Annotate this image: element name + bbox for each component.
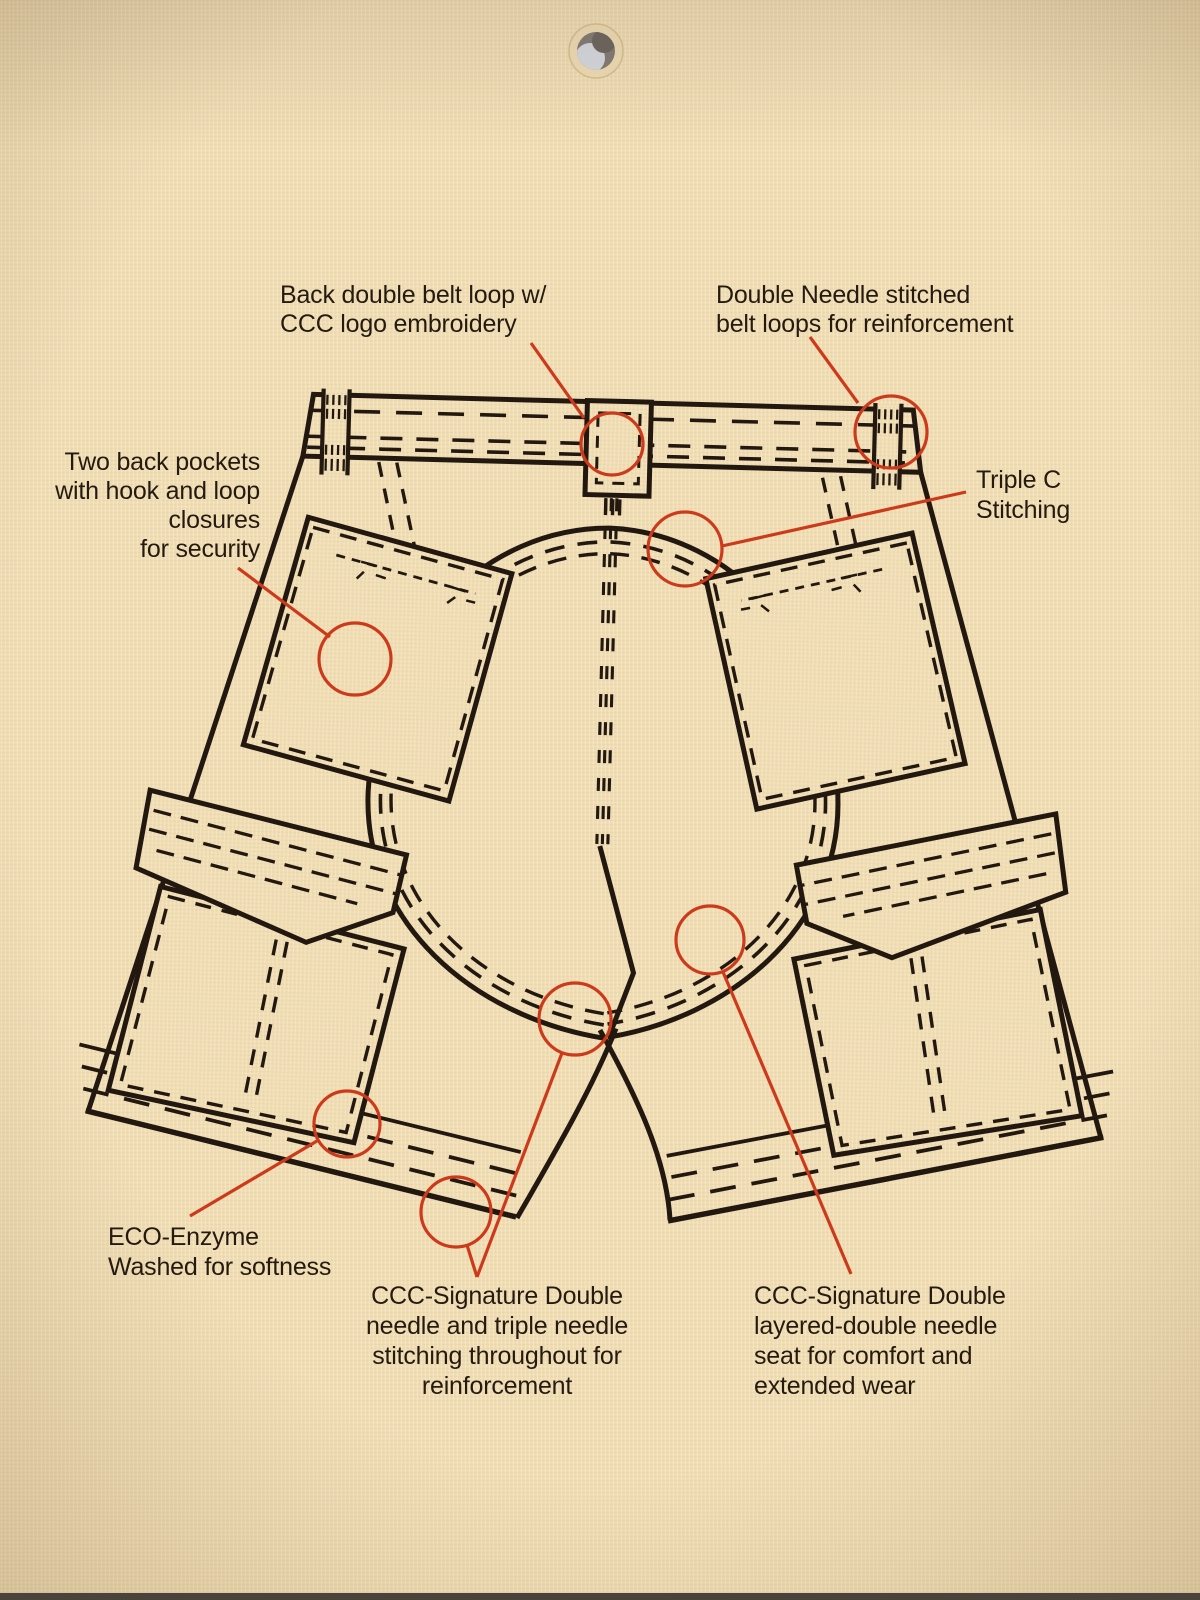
label-line: extended wear — [754, 1371, 1006, 1401]
callout-label-signature-stitching: CCC-Signature Double needle and triple n… — [357, 1281, 637, 1401]
label-line: with hook and loop — [38, 477, 260, 506]
label-line: layered-double needle — [754, 1311, 1006, 1341]
label-line: Washed for softness — [108, 1252, 331, 1282]
label-line: needle and triple needle — [357, 1311, 637, 1341]
callout-label-back-pockets: Two back pockets with hook and loop clos… — [38, 448, 260, 564]
tag-bottom-edge — [0, 1593, 1200, 1600]
label-line: CCC logo embroidery — [280, 310, 546, 339]
hang-tag: Back double belt loop w/ CCC logo embroi… — [0, 0, 1200, 1600]
label-line: Back double belt loop w/ — [280, 281, 546, 310]
top-shade — [0, 0, 1200, 150]
label-line: Triple C — [976, 465, 1070, 495]
label-line: seat for comfort and — [754, 1341, 1006, 1371]
callout-label-back-belt-loop: Back double belt loop w/ CCC logo embroi… — [280, 281, 546, 339]
label-line: Double Needle stitched — [716, 281, 1013, 310]
label-line: reinforcement — [357, 1371, 637, 1401]
callout-label-eco-enzyme: ECO-Enzyme Washed for softness — [108, 1222, 331, 1282]
label-line: belt loops for reinforcement — [716, 310, 1013, 339]
label-line: closures — [38, 506, 260, 535]
label-line: Two back pockets — [38, 448, 260, 477]
label-line: stitching throughout for — [357, 1341, 637, 1371]
callout-label-triple-c: Triple C Stitching — [976, 465, 1070, 525]
label-line: for security — [38, 535, 260, 564]
callout-label-double-needle-belt-loops: Double Needle stitched belt loops for re… — [716, 281, 1013, 339]
label-line: Stitching — [976, 495, 1070, 525]
label-line: CCC-Signature Double — [357, 1281, 637, 1311]
callout-label-signature-seat: CCC-Signature Double layered-double need… — [754, 1281, 1006, 1401]
label-line: CCC-Signature Double — [754, 1281, 1006, 1311]
label-line: ECO-Enzyme — [108, 1222, 331, 1252]
